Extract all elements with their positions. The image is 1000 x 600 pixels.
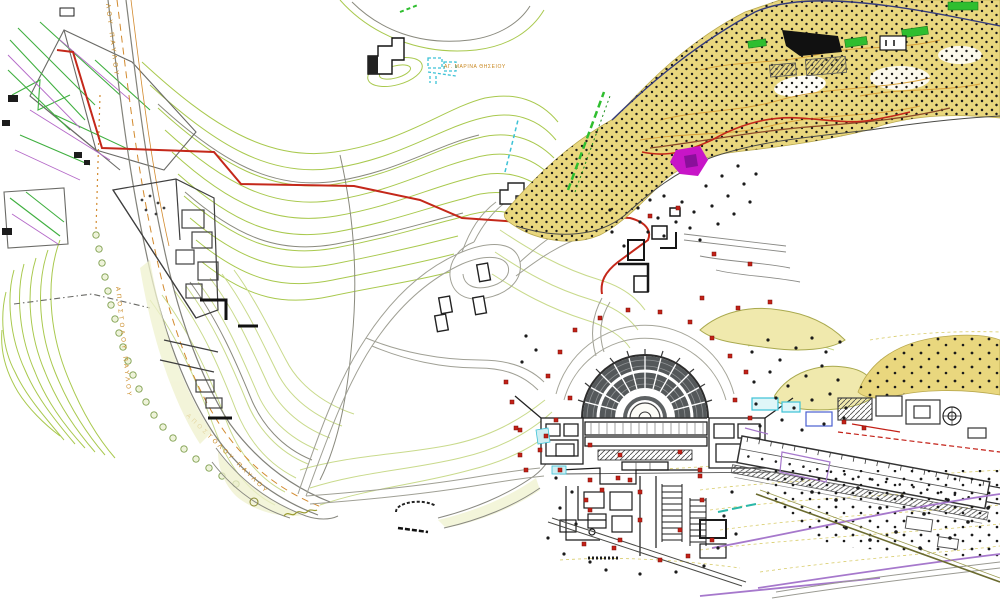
magenta-monument-2 [684,154,698,168]
dark-building [368,56,378,74]
site-plan-map: ΛΟΥ ΠΑΥΛΟΥ ΑΠΟΣΤΟΛΟΥ ΠΑΥΛΟΥ ΑΠΟΣΤΟΛΟΥ ΠΑ… [0,0,1000,600]
hill-area-label: ΑΓ. ΜΑΡΙΝΑ ΘΗΣΕΙΟΥ [444,64,506,70]
slope-building [880,36,906,50]
dense-tree-row [870,88,1000,114]
